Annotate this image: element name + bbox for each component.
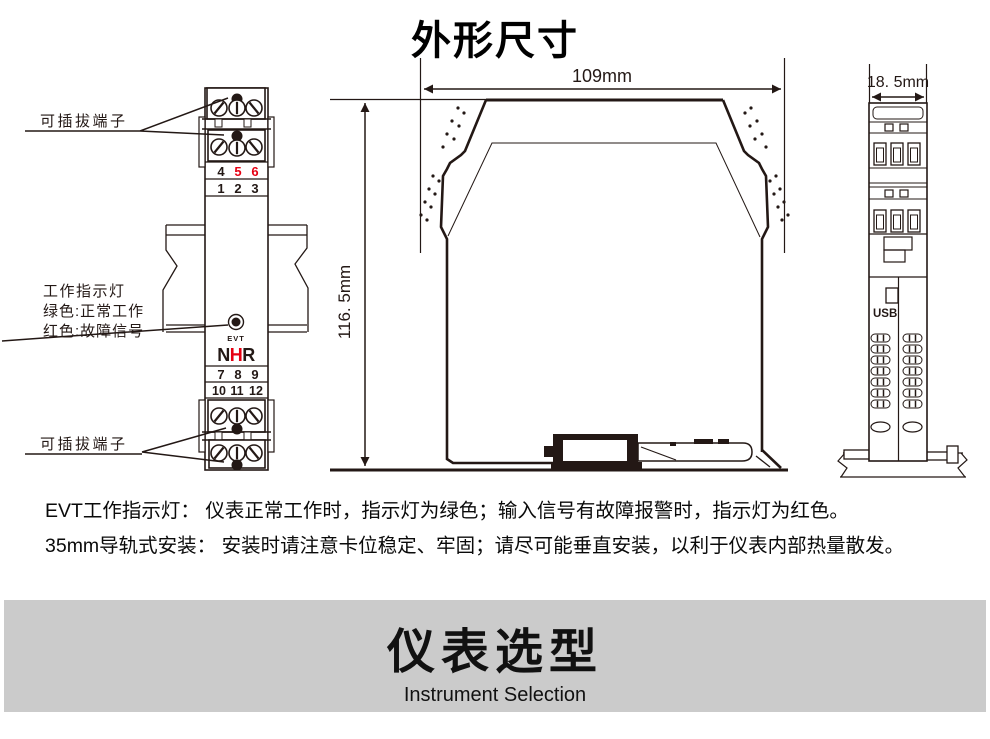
terminal-number: 8 [234, 367, 241, 382]
annotation-label: 工作指示灯 [43, 283, 126, 300]
dimension-width: 109mm [421, 58, 785, 253]
mounting-notes: EVT工作指示灯： 仪表正常工作时，指示灯为绿色；输入信号有故障报警时，指示灯为… [45, 494, 904, 564]
section-banner: 仪表选型 Instrument Selection [4, 600, 986, 712]
clip-latch [638, 439, 752, 461]
terminal-number: 4 [217, 164, 225, 179]
note-din-mounting: 35mm导轨式安装： 安装时请注意卡位稳定、牢固；请尽可能垂直安装，以利于仪表内… [45, 529, 904, 564]
terminal-number: 10 [212, 384, 226, 398]
terminal-number: 7 [217, 367, 224, 382]
dimension-label: 116. 5mm [335, 265, 354, 339]
dimension-label: 109mm [572, 66, 632, 86]
latch-bar-left [844, 450, 870, 459]
front-view: 4 5 6 1 2 3 EVT NHR 7 8 9 10 11 [2, 88, 308, 471]
screws-bottom-2 [211, 445, 262, 461]
terminal-number: 5 [234, 164, 241, 179]
terminal-number: 2 [234, 181, 241, 196]
led-label: EVT [227, 334, 245, 343]
wire-hole-dot [232, 424, 243, 435]
housing-outline [330, 100, 788, 470]
logo-letter-h: H [230, 345, 243, 365]
nhr-logo: NHR [217, 345, 255, 365]
latch-cap [947, 446, 958, 463]
profile-view: USB [838, 64, 967, 477]
annotation-pluggable-top: 可插拔端子 [25, 98, 228, 135]
work-indicator-led [229, 315, 244, 330]
datasheet-page: 外形尺寸 [0, 0, 990, 739]
terminal-number: 9 [251, 367, 258, 382]
annotation-pluggable-bottom: 可插拔端子 [25, 428, 226, 462]
terminal-number: 6 [251, 164, 258, 179]
logo-letter-r: R [242, 345, 255, 365]
terminal-number: 3 [251, 181, 258, 196]
terminal-number: 11 [230, 384, 243, 398]
mounting-clip [544, 434, 752, 471]
screws-top-2 [211, 139, 262, 156]
dimension-label: 18. 5mm [867, 74, 929, 91]
annotation-label: 可插拔端子 [40, 113, 128, 130]
screws-top-1 [211, 100, 262, 116]
banner-subtitle: Instrument Selection [4, 684, 986, 707]
annotation-label: 可插拔端子 [40, 436, 128, 453]
dimension-profile-width: 18. 5mm [867, 64, 929, 103]
terminal-number: 12 [249, 384, 263, 398]
terminal-number: 1 [217, 181, 224, 196]
usb-label: USB [873, 308, 897, 320]
banner-title: 仪表选型 [4, 612, 986, 682]
note-evt-indicator: EVT工作指示灯： 仪表正常工作时，指示灯为绿色；输入信号有故障报警时，指示灯为… [45, 494, 904, 529]
side-view: 109mm 116. 5mm [330, 58, 790, 471]
wire-hole-dot [232, 460, 243, 471]
annotation-label: 绿色:正常工作 [43, 303, 144, 320]
screws-bottom-1 [211, 408, 262, 424]
logo-letter-n: N [217, 345, 230, 365]
